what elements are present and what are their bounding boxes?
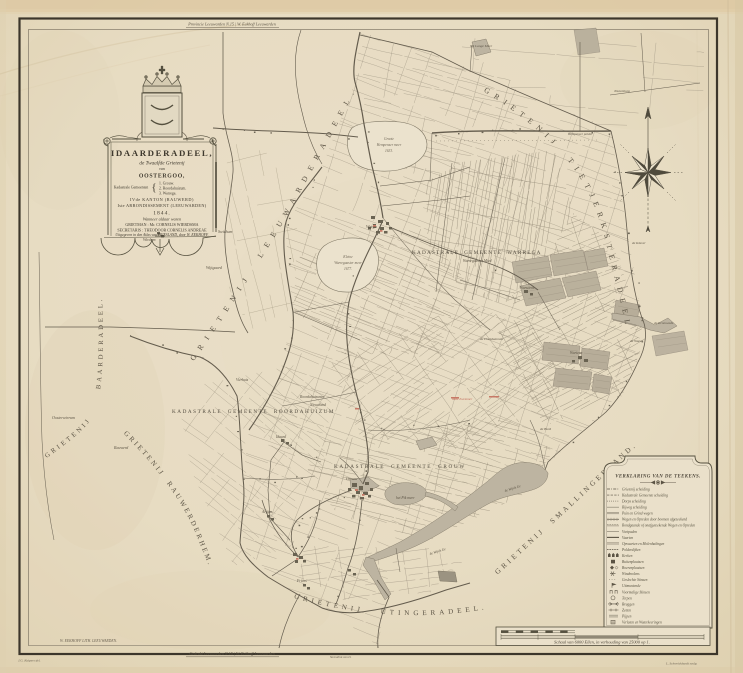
svg-text:Kerken: Kerken: [621, 554, 633, 558]
svg-text:Voetpaden: Voetpaden: [622, 530, 637, 534]
svg-text:Kadastrale Gemeente scheiding: Kadastrale Gemeente scheiding: [621, 493, 668, 497]
svg-text:Uitmuntende: Uitmuntende: [622, 584, 641, 588]
svg-text:Dorps scheiding: Dorps scheiding: [621, 500, 646, 504]
svg-text:de Klaver: de Klaver: [632, 241, 646, 245]
svg-text:Wartena: Wartena: [570, 351, 583, 355]
svg-text:Nieuwland: Nieuwland: [309, 403, 326, 407]
svg-text:Rondgaande of onafgeteekende W: Rondgaande of onafgeteekende Wegen en Op…: [621, 524, 695, 528]
svg-text:Warga: Warga: [366, 224, 377, 229]
svg-text:W. EEKHOFF LITH. LEEUWARDEN.: W. EEKHOFF LITH. LEEUWARDEN.: [60, 639, 117, 643]
svg-text:Oosterwierum: Oosterwierum: [52, 415, 75, 420]
svg-text:KADASTRALE GEMEENTE WARREGA: KADASTRALE GEMEENTE WARREGA: [412, 250, 542, 256]
svg-text:Puin en Grind wegen: Puin en Grind wegen: [621, 512, 653, 516]
svg-text:Windmolens: Windmolens: [622, 572, 640, 576]
svg-text:Boerenplaatsen: Boerenplaatsen: [622, 566, 645, 570]
svg-text:de Burd: de Burd: [540, 427, 551, 431]
svg-text:Provincie Leeuwarden N.15 | W.: Provincie Leeuwarden N.15 | W. Eekhoff L…: [187, 22, 276, 27]
svg-text:Gedrukt Leeuwarden N.15 | W. E: Gedrukt Leeuwarden N.15 | W. Eekhoff Lee…: [189, 651, 274, 656]
svg-text:SECRETARIS : THEODOOR CORNELIS: SECRETARIS : THEODOOR CORNELIS ANDREAE: [117, 228, 207, 233]
svg-text:Aegum: Aegum: [261, 510, 273, 514]
svg-text:Wanneer aldaar waren: Wanneer aldaar waren: [143, 217, 181, 222]
svg-text:Rijweg scheiding: Rijweg scheiding: [621, 506, 647, 510]
svg-text:Iste ARRONDISSEMENT (LEEUWARDE: Iste ARRONDISSEMENT (LEEUWARDEN): [117, 203, 206, 208]
svg-text:OOSTERGOO,: OOSTERGOO,: [139, 174, 185, 180]
svg-text:IDAARDERADEEL,: IDAARDERADEEL,: [111, 148, 213, 158]
svg-text:Verlaten en Waterkeeringen: Verlaten en Waterkeeringen: [622, 621, 662, 625]
svg-text:GRIETMAN : Mr. CORNELIS WIERDS: GRIETMAN : Mr. CORNELIS WIERDSMA: [125, 222, 198, 227]
svg-text:Bruggen: Bruggen: [622, 602, 635, 606]
svg-text:Zetten: Zetten: [622, 608, 631, 612]
svg-text:Roordahuizumer: Roordahuizumer: [299, 395, 325, 399]
svg-text:Swichum: Swichum: [218, 229, 233, 234]
svg-text:Steendruk van D.: Steendruk van D.: [330, 655, 352, 659]
svg-text:KADASTRALE GEMEENTE GROUW: KADASTRALE GEMEENTE GROUW: [334, 464, 466, 470]
svg-text:1. Grouw.: 1. Grouw.: [159, 182, 174, 186]
svg-text:Voormalige Stinsen: Voormalige Stinsen: [622, 590, 650, 594]
svg-text:Vaarten: Vaarten: [622, 536, 633, 540]
svg-text:Warstiens: Warstiens: [520, 286, 535, 290]
svg-text:Grouw: Grouw: [346, 476, 358, 481]
svg-text:van: van: [159, 166, 165, 171]
svg-text:Pijpen: Pijpen: [621, 614, 632, 618]
svg-text:{: {: [151, 183, 156, 194]
svg-text:Wegen en Opreden door boomen a: Wegen en Opreden door boomen afgeteekend: [622, 518, 687, 522]
svg-text:de Waeze: de Waeze: [630, 339, 643, 343]
svg-text:IVde KANTON (RAUWERD): IVde KANTON (RAUWERD): [130, 197, 194, 202]
svg-text:de Hooidammen: de Hooidammen: [480, 337, 503, 341]
svg-text:Vierhuis: Vierhuis: [236, 378, 249, 382]
svg-text:Grietenij scheiding: Grietenij scheiding: [622, 487, 650, 491]
svg-text:Idaard: Idaard: [275, 435, 286, 439]
svg-text:Rauwerd: Rauwerd: [113, 445, 129, 450]
svg-text:Friens: Friens: [296, 579, 307, 583]
svg-text:Hempenser polder: Hempenser polder: [567, 132, 593, 136]
svg-text:KADASTRALE GEMEENTE ROORDAHU: KADASTRALE GEMEENTE ROORDAHUIZUM: [172, 409, 335, 415]
svg-text:Polderdijken: Polderdijken: [621, 548, 641, 552]
svg-text:Warregaaster Mied: Warregaaster Mied: [463, 259, 492, 263]
svg-text:L. Schweickhardt sculp.: L. Schweickhardt sculp.: [665, 662, 698, 666]
svg-text:3. Warrega.: 3. Warrega.: [159, 192, 176, 196]
svg-text:het Lange Meer: het Lange Meer: [470, 44, 493, 48]
svg-text:Wirdum: Wirdum: [143, 237, 156, 242]
svg-text:Terpen: Terpen: [622, 596, 632, 600]
svg-text:het Pik meer: het Pik meer: [396, 496, 415, 500]
svg-text:Buitenplaatsen: Buitenplaatsen: [622, 560, 644, 564]
svg-text:Wijtgaard: Wijtgaard: [206, 265, 223, 270]
svg-text:oude Zwemmer: oude Zwemmer: [452, 397, 473, 401]
svg-text:Geslechte Stinsen: Geslechte Stinsen: [622, 578, 648, 582]
svg-text:Opvaarten en Molenhalingen: Opvaarten en Molenhalingen: [622, 542, 665, 546]
svg-text:J.G. Kuipers del.: J.G. Kuipers del.: [18, 659, 41, 663]
svg-text:VERKLARING VAN DE TEEKENS.: VERKLARING VAN DE TEEKENS.: [615, 475, 701, 480]
svg-text:Toutenburg: Toutenburg: [614, 89, 630, 93]
svg-text:de Kromwade: de Kromwade: [654, 321, 674, 325]
svg-text:Kadastrale Gemeenten: Kadastrale Gemeenten: [114, 186, 149, 190]
svg-text:2. Roordahuizum.: 2. Roordahuizum.: [159, 187, 186, 191]
